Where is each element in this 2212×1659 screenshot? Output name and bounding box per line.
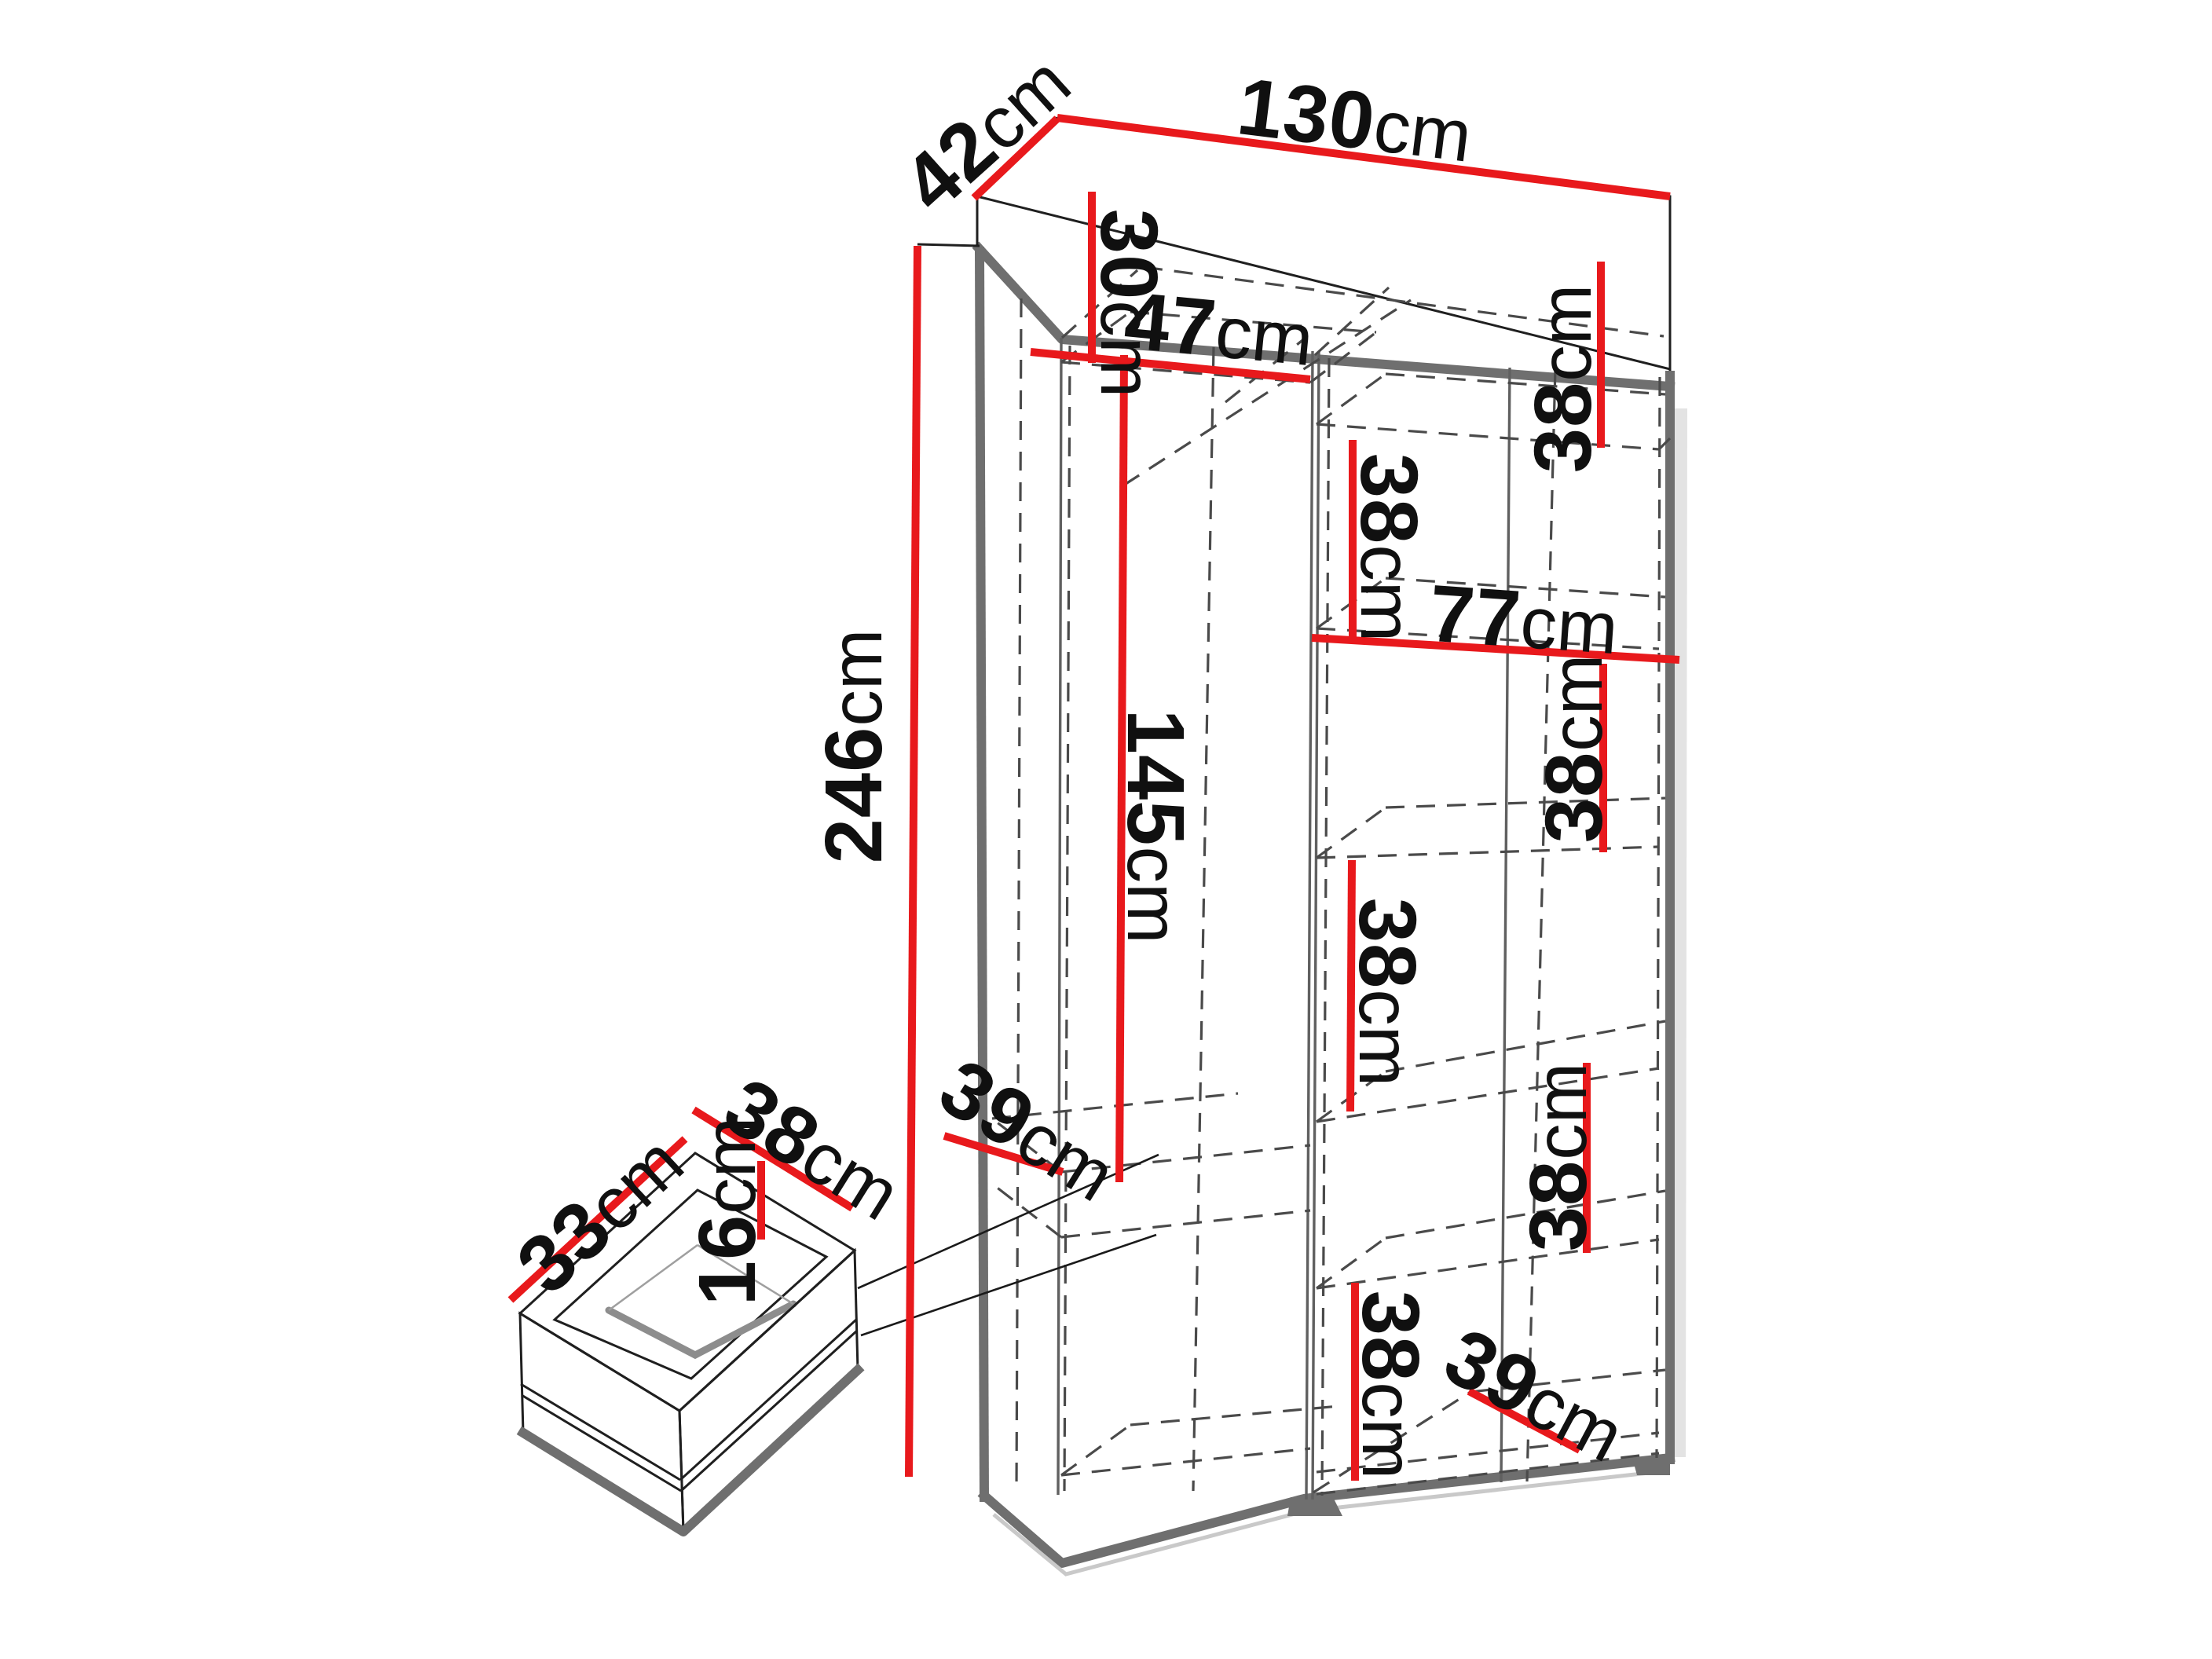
left-wall-edge <box>980 251 984 1497</box>
dim-label-hanging-145: 145cm <box>1111 709 1201 944</box>
dim-label-drawer-height-16: 16cm <box>682 1117 772 1306</box>
dim-label-left-width-47: 47cm <box>1121 275 1317 383</box>
drawer-front-left-face <box>520 1313 683 1532</box>
wardrobe-dimension-diagram: 42cm 130cm 246cm 30cm 47cm 145cm 38cm 38… <box>0 0 2212 1659</box>
dim-label-left-shelf-depth-39: 39cm <box>925 1042 1133 1218</box>
dim-tick-height-top <box>917 244 980 246</box>
dim-label-section4-38: 38cm <box>1342 898 1433 1087</box>
dim-label-section3-38: 38cm <box>1529 654 1619 844</box>
dashed-floor-left <box>1061 1406 1339 1475</box>
right-foot <box>1632 1455 1670 1475</box>
dim-line-height-246 <box>909 246 917 1477</box>
dimension-labels: 42cm 130cm 246cm 30cm 47cm 145cm 38cm 38… <box>500 35 1640 1479</box>
center-foot <box>1287 1497 1342 1516</box>
right-shadow <box>1679 408 1681 1457</box>
dim-label-width-130: 130cm <box>1233 60 1478 179</box>
dashed-shelf-r5 <box>1317 1191 1665 1288</box>
dim-label-section1-38: 38cm <box>1518 284 1608 474</box>
dim-label-section6-38: 38cm <box>1346 1291 1436 1480</box>
dim-label-right-shelf-depth-39: 39cm <box>1431 1310 1640 1478</box>
dim-label-depth-42: 42cm <box>885 35 1086 229</box>
drawer-bottom-edge <box>523 1370 858 1532</box>
dim-label-section5-38: 38cm <box>1513 1063 1603 1252</box>
dim-label-section2-38: 38cm <box>1344 453 1434 643</box>
dim-label-height-246: 246cm <box>808 629 899 864</box>
